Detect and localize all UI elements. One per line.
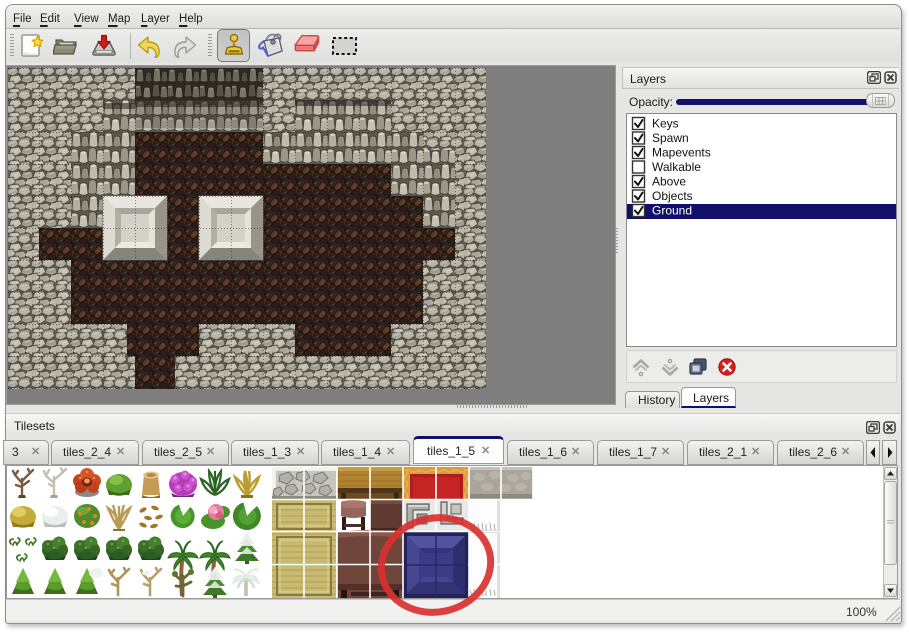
svg-text:Walkable: Walkable — [652, 160, 701, 174]
svg-text:Mapevents: Mapevents — [652, 146, 711, 160]
svg-text:Spawn: Spawn — [652, 131, 689, 145]
svg-text:Objects: Objects — [652, 189, 693, 203]
svg-text:Above: Above — [652, 175, 686, 189]
svg-text:Ground: Ground — [652, 204, 692, 218]
svg-text:Keys: Keys — [652, 117, 679, 131]
